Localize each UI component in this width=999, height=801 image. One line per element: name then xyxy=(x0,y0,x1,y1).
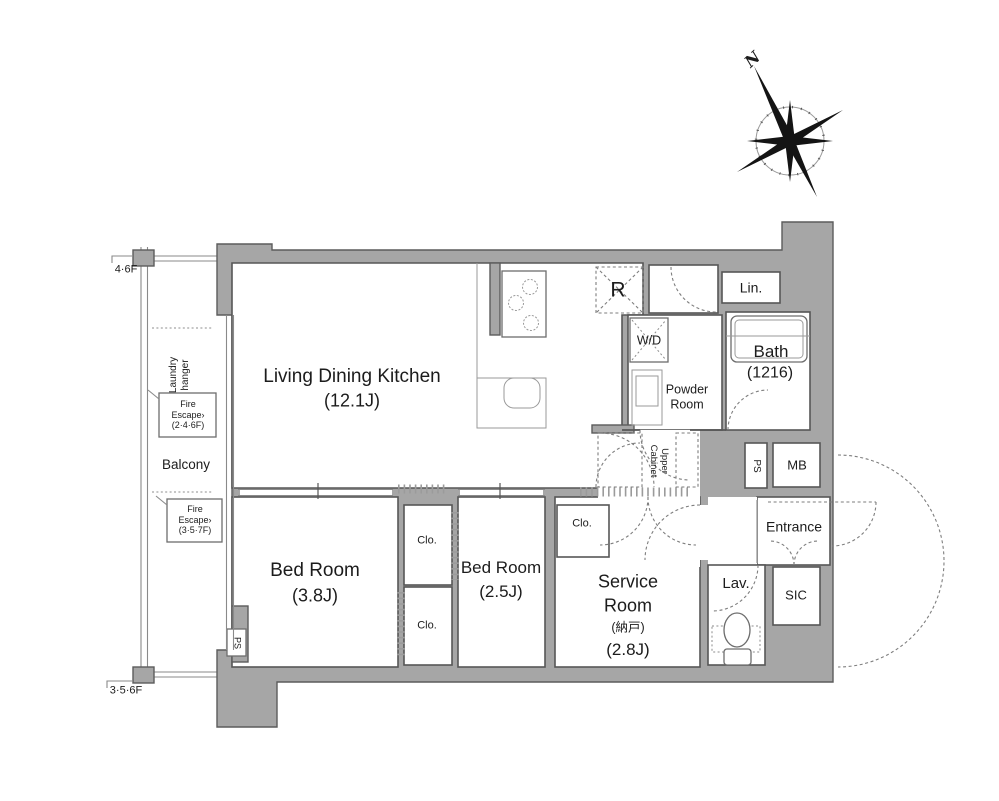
room-ldk xyxy=(232,263,643,488)
room-linen xyxy=(722,272,780,303)
kitchen-wall-stub xyxy=(490,263,500,335)
bathtub-icon xyxy=(731,316,807,362)
compass-rose xyxy=(737,66,843,197)
balcony-top-pier xyxy=(133,250,154,266)
floorplan-drawing xyxy=(0,0,999,801)
floor-tick-lower xyxy=(107,681,133,688)
balcony-structure xyxy=(107,247,222,688)
room-sic xyxy=(773,567,820,625)
entrance-door-arc xyxy=(832,502,876,546)
toilet-tank xyxy=(724,649,751,665)
ps-box-lower xyxy=(227,629,246,656)
vestibule xyxy=(708,497,757,565)
room-entrance xyxy=(757,497,830,565)
floor-tick-upper xyxy=(112,256,133,263)
room-mb xyxy=(773,443,820,487)
hall xyxy=(598,430,700,567)
hall-nook xyxy=(649,265,718,313)
floorplan-page: Living Dining Kitchen (12.1J) Bed Room (… xyxy=(0,0,999,801)
room-closet-c xyxy=(557,505,609,557)
toilet-bowl xyxy=(724,613,750,647)
entrance-door-arc-outer xyxy=(838,455,944,667)
balcony-bottom-pier xyxy=(133,667,154,683)
hall-wall-stub xyxy=(592,425,634,433)
fire-escape-hatch-upper xyxy=(159,393,216,437)
bath-fixtures xyxy=(726,316,810,362)
room-closet-b xyxy=(404,587,452,665)
room-bedroom-a xyxy=(232,497,398,667)
room-closet-a xyxy=(404,505,452,585)
room-ps xyxy=(745,443,767,488)
room-bedroom-b xyxy=(458,497,545,667)
fire-escape-hatch-lower xyxy=(167,499,222,542)
